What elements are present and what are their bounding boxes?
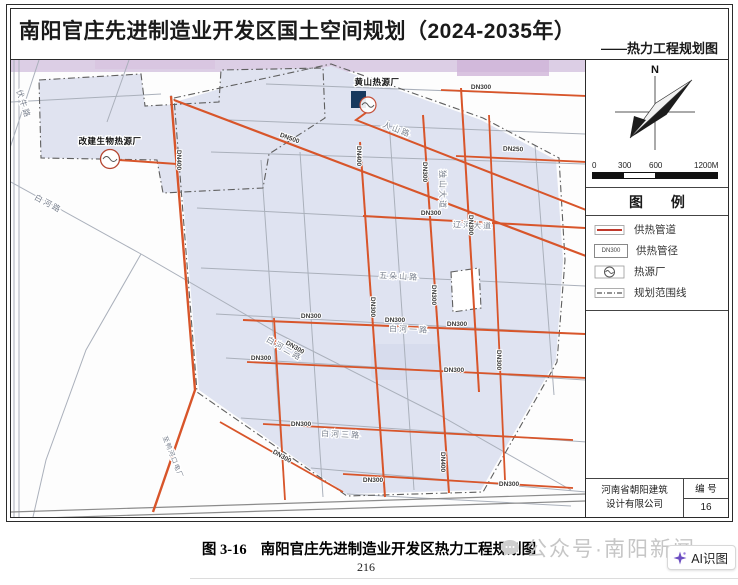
dn-label: DN300 (251, 355, 272, 362)
legend: 图 例 供热管道 DN300 供热管径 (586, 188, 728, 311)
dn-label: DN300 (467, 215, 474, 236)
ai-badge-label: AI识图 (691, 548, 728, 567)
plant-label: 改建生物热源厂 (78, 136, 141, 146)
dn-label: DN300 (430, 285, 437, 306)
legend-label: 供热管径 (636, 243, 678, 258)
scale-tick: 600 (649, 161, 662, 170)
content-row: 改建生物热源厂 黄山热源厂 白河路 伏牛路 人山路 五朵山路 辽河大道 独山大道… (11, 60, 728, 517)
dn-label: DN300 (444, 367, 465, 374)
heat-plant-icon (594, 265, 626, 279)
sheet-number-column: 编 号 16 (684, 479, 728, 517)
legend-item-diameter: DN300 供热管径 (586, 237, 728, 258)
land-parcels (11, 60, 585, 494)
road-label: 白河路 (33, 192, 64, 215)
page-bottom-rule (190, 578, 738, 579)
dn-box-icon: DN300 (594, 244, 628, 258)
road-label: 至鸭河口电厂 (161, 435, 186, 480)
title-bar: 南阳官庄先进制造业开发区国土空间规划（2024-2035年） ——热力工程规划图 (11, 9, 728, 60)
legend-label: 供热管道 (634, 222, 676, 237)
road-label: 白河一路 (389, 323, 429, 334)
planning-map: 改建生物热源厂 黄山热源厂 白河路 伏牛路 人山路 五朵山路 辽河大道 独山大道… (11, 60, 585, 517)
legend-item-boundary: 规划范围线 (586, 279, 728, 300)
scale-bar-segments (592, 172, 718, 179)
north-arrow: N (590, 62, 720, 154)
dn-label: DN300 (447, 321, 468, 328)
map-sidebar: N 0 300 600 1200M (586, 60, 728, 517)
figure-title: 南阳官庄先进制造业开发区热力工程规划图 (261, 542, 537, 558)
road-label: 伏牛路 (14, 88, 33, 120)
dn-label: DN300 (363, 477, 384, 484)
road-label: 独山大道 (438, 170, 448, 210)
scale-tick: 1200M (694, 161, 718, 170)
design-company: 河南省朝阳建筑 设计有限公司 (586, 479, 684, 517)
map-subtitle: ——热力工程规划图 (601, 38, 718, 57)
dn-label: DN400 (355, 146, 362, 167)
dn-label: DN300 (499, 481, 520, 488)
north-label: N (651, 64, 659, 76)
legend-item-pipe: 供热管道 (586, 216, 728, 237)
company-line1: 河南省朝阳建筑 (586, 484, 683, 498)
railway-line (11, 494, 585, 517)
dn-label: DN300 (471, 84, 492, 91)
sparkle-icon (673, 551, 687, 565)
sheet-number-label: 编 号 (684, 479, 728, 499)
dn-label: DN300 (495, 350, 502, 371)
dn-label: DN300 (291, 421, 312, 428)
dn-label: DN400 (175, 150, 182, 171)
figure-number: 图 3-16 (202, 542, 247, 558)
dn-label: DN400 (439, 452, 446, 473)
legend-label: 热源厂 (634, 264, 666, 279)
legend-item-plant: 热源厂 (586, 258, 728, 279)
road-label: 五朵山路 (379, 270, 419, 282)
page: { "frame": { "title": "南阳官庄先进制造业开发区国土空间规… (0, 0, 738, 585)
dn-label: DN300 (301, 313, 322, 320)
ai-recognize-button[interactable]: AI识图 (667, 545, 736, 570)
sidebar-spacer (586, 311, 728, 478)
sheet-inner-frame: 南阳官庄先进制造业开发区国土空间规划（2024-2035年） ——热力工程规划图 (10, 8, 729, 518)
dn-label: DN300 (421, 162, 428, 183)
dn-label: DN300 (421, 210, 442, 217)
drawing-sheet: 南阳官庄先进制造业开发区国土空间规划（2024-2035年） ——热力工程规划图 (6, 4, 733, 522)
scale-tick: 0 (592, 161, 596, 170)
scale-ticks: 0 300 600 1200M (592, 161, 722, 172)
map-area: 改建生物热源厂 黄山热源厂 白河路 伏牛路 人山路 五朵山路 辽河大道 独山大道… (11, 60, 586, 517)
title-block: 河南省朝阳建筑 设计有限公司 编 号 16 (586, 478, 728, 517)
legend-label: 规划范围线 (634, 285, 687, 300)
page-number: 216 (336, 560, 396, 575)
legend-header: 图 例 (586, 188, 728, 216)
pipe-line-icon (594, 224, 626, 236)
road-label: 白河三路 (321, 428, 361, 440)
scale-bar: 0 300 600 1200M (592, 161, 722, 183)
chat-bubble-icon (500, 539, 520, 557)
scale-tick: 300 (618, 161, 631, 170)
dn-label: DN300 (385, 317, 406, 324)
compass-section: N 0 300 600 1200M (586, 60, 728, 188)
sheet-number-value: 16 (684, 499, 728, 518)
dn-label: DN250 (503, 146, 524, 154)
plant-label: 黄山热源厂 (354, 77, 399, 87)
boundary-line-icon (594, 287, 626, 299)
company-line2: 设计有限公司 (586, 498, 683, 512)
dn-label: DN300 (369, 297, 376, 318)
